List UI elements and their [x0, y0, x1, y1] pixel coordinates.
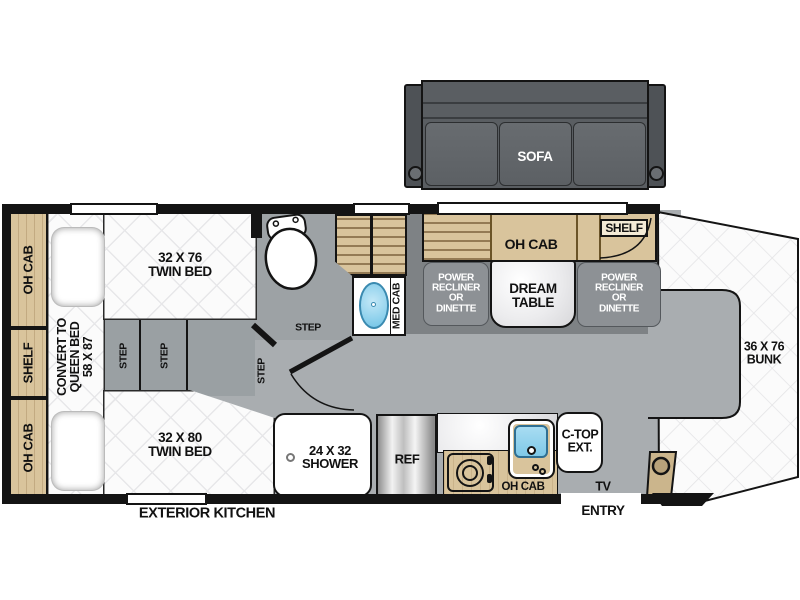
oh-cab-kitchen-label: OH CAB — [502, 482, 545, 494]
toilet-icon — [260, 213, 320, 292]
dream-table-label: DREAMTABLE — [509, 282, 557, 310]
oh-cab-top-left-label: OH CAB — [21, 246, 34, 295]
corner-shelf: SHELF — [600, 219, 648, 237]
oh-cab-bottom-left-label: OH CAB — [21, 424, 34, 473]
ctop-ext-label: C-TOPEXT. — [562, 428, 599, 454]
exterior-kitchen-hatch — [126, 493, 207, 505]
wall-stub — [251, 212, 262, 238]
twin-bed-top-label: 32 X 76TWIN BED — [148, 251, 212, 279]
door-swing-arc — [291, 374, 354, 410]
faucet-handle-icon — [532, 464, 539, 471]
window — [70, 203, 158, 215]
faucet-handle-icon — [539, 468, 546, 475]
floorplan-canvas: SOFA MED CAB SHELF OH CAB — [0, 0, 800, 600]
exterior-kitchen-label: EXTERIOR KITCHEN — [139, 507, 275, 522]
step-label: STEP — [160, 343, 171, 369]
left-wall — [2, 204, 11, 504]
bath-door — [290, 338, 352, 372]
ref-label: REF — [395, 452, 420, 465]
queen-convert-label: CONVERT TOQUEEN BED58 X 87 — [56, 318, 94, 396]
cab-floor-cutout — [648, 290, 740, 418]
shelf-dinette-label: SHELF — [605, 222, 642, 234]
slideout-window — [437, 202, 628, 215]
recliner-left-label: POWERRECLINER ORDINETTE — [432, 274, 480, 315]
faucet-icon — [527, 446, 536, 455]
tv-label: TV — [595, 481, 610, 494]
twin-bed-bottom-label: 32 X 80TWIN BED — [148, 431, 212, 459]
kitchen-sink — [508, 419, 555, 479]
step-label: STEP — [257, 358, 268, 384]
sofa-label: SOFA — [517, 150, 552, 164]
shelf-left-label: SHELF — [21, 343, 34, 384]
oh-cab-dinette-label: OH CAB — [505, 237, 558, 251]
burner-knob-icon — [487, 456, 492, 465]
step-label: STEP — [119, 343, 130, 369]
window — [353, 203, 410, 215]
recliner-right-label: POWERRECLINER ORDINETTE — [595, 274, 643, 315]
step-label: STEP — [295, 323, 321, 334]
shower-drain-icon — [286, 453, 295, 462]
entry-label: ENTRY — [581, 504, 624, 518]
shower-label: 24 X 32SHOWER — [302, 444, 358, 471]
burner-knob-icon — [487, 474, 492, 483]
bunk-label: 36 X 76BUNK — [744, 340, 784, 366]
med-cab-label: MED CAB — [392, 283, 403, 329]
